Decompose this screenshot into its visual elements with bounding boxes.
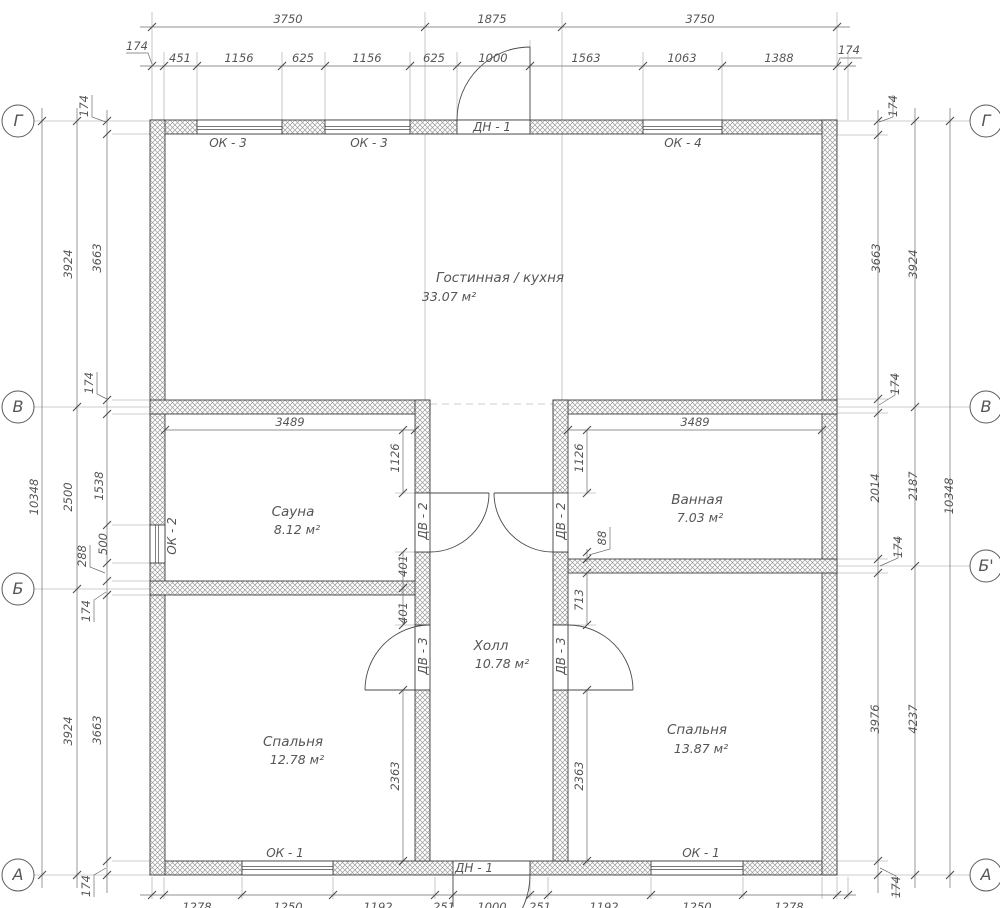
dimension-label: 713 — [572, 589, 586, 611]
wall-hall-right-1 — [553, 400, 568, 493]
opening-tag: ДН - 1 — [472, 120, 511, 134]
dimension-label: 1156 — [224, 51, 253, 65]
axis-letter: А — [980, 865, 992, 884]
dimension-label: 1192 — [589, 900, 618, 908]
dimension-label: 401 — [396, 555, 410, 577]
dimension-label: 1126 — [572, 443, 586, 472]
opening-tag: ОК - 3 — [209, 136, 247, 150]
opening-tag: ОК - 1 — [266, 846, 304, 860]
wall-hall-right-3 — [553, 690, 568, 861]
axis-letter: А — [12, 865, 24, 884]
dimension-label: 174 — [126, 39, 148, 53]
dimension-leader — [94, 868, 106, 897]
dimension-label: 1156 — [352, 51, 381, 65]
wall-axis-b — [150, 581, 430, 595]
dimension-leader — [94, 592, 106, 622]
room-name: Ванная — [671, 492, 723, 508]
room-area: 12.78 м² — [270, 752, 324, 767]
dimension-label: 3663 — [90, 243, 104, 272]
dimension-label: 625 — [423, 51, 445, 65]
dimension-label: 2014 — [868, 473, 882, 502]
dimension-label: 1875 — [477, 12, 506, 26]
dimension-label: 1563 — [571, 51, 600, 65]
room-area: 7.03 м² — [677, 510, 723, 525]
windows — [150, 120, 743, 875]
wall-axis-v-left — [150, 400, 430, 414]
axis-letter: Б' — [978, 556, 993, 575]
room-area: 8.12 м² — [274, 522, 320, 537]
window-ok4 — [643, 120, 722, 134]
dimension-label: 288 — [75, 545, 89, 567]
dimension-label: 3750 — [685, 12, 714, 26]
room-area: 13.87 м² — [674, 741, 728, 756]
opening-tag: ДВ - 2 — [416, 502, 430, 540]
axis-letter: В — [13, 397, 24, 416]
axis-letter: Г — [14, 111, 24, 130]
door-openings — [415, 120, 568, 875]
dimension-label: 3924 — [906, 249, 920, 278]
wall-axis-b-prime — [553, 559, 837, 573]
door-swings — [365, 47, 633, 908]
door-dv2-left-arc — [430, 493, 489, 552]
wall-axis-v-right — [553, 400, 837, 414]
door-dv2-right-arc — [494, 493, 553, 552]
opening-tag: ДВ - 3 — [554, 637, 568, 675]
dimension-label: 1063 — [667, 51, 696, 65]
dimension-label: 3750 — [273, 12, 302, 26]
dimension-label: 625 — [292, 51, 314, 65]
room-area: 10.78 м² — [475, 656, 529, 671]
door-dv3-right-arc — [568, 625, 633, 690]
opening-tag: ДВ - 3 — [416, 637, 430, 675]
opening-tag: ДН - 1 — [454, 861, 493, 875]
wall-hall-left-3 — [415, 690, 430, 861]
dimension-label: 2500 — [61, 482, 75, 511]
dimension-label: 174 — [888, 373, 902, 395]
dimension-label: 174 — [889, 876, 903, 898]
dimension-leader — [92, 95, 106, 122]
dimension-label: 174 — [838, 43, 860, 57]
dimension-label: 1000 — [477, 900, 506, 908]
dimension-label: 1126 — [388, 443, 402, 472]
axis-letter: В — [981, 397, 992, 416]
wall-right — [822, 120, 837, 875]
dimension-label: 3976 — [868, 704, 882, 733]
wall-hall-right-2 — [553, 552, 568, 625]
window-ok2 — [150, 525, 165, 563]
room-name: Холл — [473, 638, 509, 654]
dimension-label: 174 — [886, 95, 900, 117]
dimension-label: 3924 — [61, 716, 75, 745]
dimension-label: 1538 — [92, 471, 106, 500]
axis-letter: Г — [982, 111, 992, 130]
dimension-label: 3924 — [61, 249, 75, 278]
wall-hall-left-2 — [415, 552, 430, 625]
dimension-label: 1000 — [478, 51, 507, 65]
dimension-label: 401 — [396, 602, 410, 624]
dimension-label: 1278 — [182, 900, 211, 908]
dimension-label: 2363 — [388, 761, 402, 790]
room-name: Спальня — [263, 734, 323, 750]
opening-tag: ДВ - 2 — [554, 502, 568, 540]
dimension-label: 4237 — [906, 704, 920, 734]
floor-plan-page: ГВБАГВБ'А 375018753750174174451115662511… — [0, 0, 1000, 908]
dimension-label: 88 — [595, 531, 609, 546]
opening-tag: ОК - 4 — [664, 136, 702, 150]
dimension-label: 500 — [96, 533, 110, 555]
dimension-leader — [126, 53, 152, 64]
room-area: 33.07 м² — [422, 289, 476, 304]
floor-plan-canvas: ГВБАГВБ'А 375018753750174174451115662511… — [0, 0, 1000, 908]
dimension-label: 1250 — [273, 900, 302, 908]
opening-tag: ОК - 2 — [165, 517, 179, 555]
wall-left — [150, 120, 165, 875]
opening-tag: ОК - 3 — [350, 136, 388, 150]
dimension-label: 3663 — [90, 715, 104, 744]
dimension-leader — [97, 372, 107, 399]
opening-tag: ОК - 1 — [682, 846, 720, 860]
walls — [150, 120, 837, 875]
dimension-label: 1250 — [682, 900, 711, 908]
dimension-label: 10348 — [942, 478, 956, 515]
dimension-label: 251 — [529, 900, 551, 908]
room-name: Спальня — [667, 722, 727, 738]
dimension-label: 3489 — [275, 415, 304, 429]
window-ok3-2 — [325, 120, 410, 134]
dimension-label: 174 — [79, 600, 93, 622]
room-name: Сауна — [272, 504, 315, 520]
dimension-label: 451 — [169, 51, 191, 65]
axis-letter: Б — [13, 579, 24, 598]
window-ok3-1 — [197, 120, 282, 134]
dimension-label: 10348 — [27, 479, 41, 516]
dimension-label: 2187 — [906, 471, 920, 501]
dimension-lines — [38, 23, 954, 899]
room-name: Гостинная / кухня — [436, 270, 564, 286]
dimension-label: 2363 — [572, 761, 586, 790]
dimension-label: 1388 — [764, 51, 793, 65]
wall-hall-left-1 — [415, 400, 430, 493]
dimension-label: 174 — [82, 372, 96, 394]
window-ok1-left — [242, 861, 333, 875]
dimension-label: 1192 — [363, 900, 392, 908]
window-ok1-right — [651, 861, 743, 875]
dimension-label: 174 — [79, 875, 93, 897]
dimension-label: 174 — [77, 95, 91, 117]
text-labels: 3750187537501741744511156625115662510001… — [27, 12, 956, 908]
dimension-label: 3489 — [680, 415, 709, 429]
dimension-label: 174 — [891, 536, 905, 558]
dimension-label: 251 — [433, 900, 455, 908]
dimension-label: 3663 — [869, 243, 883, 272]
dimension-label: 1278 — [774, 900, 803, 908]
